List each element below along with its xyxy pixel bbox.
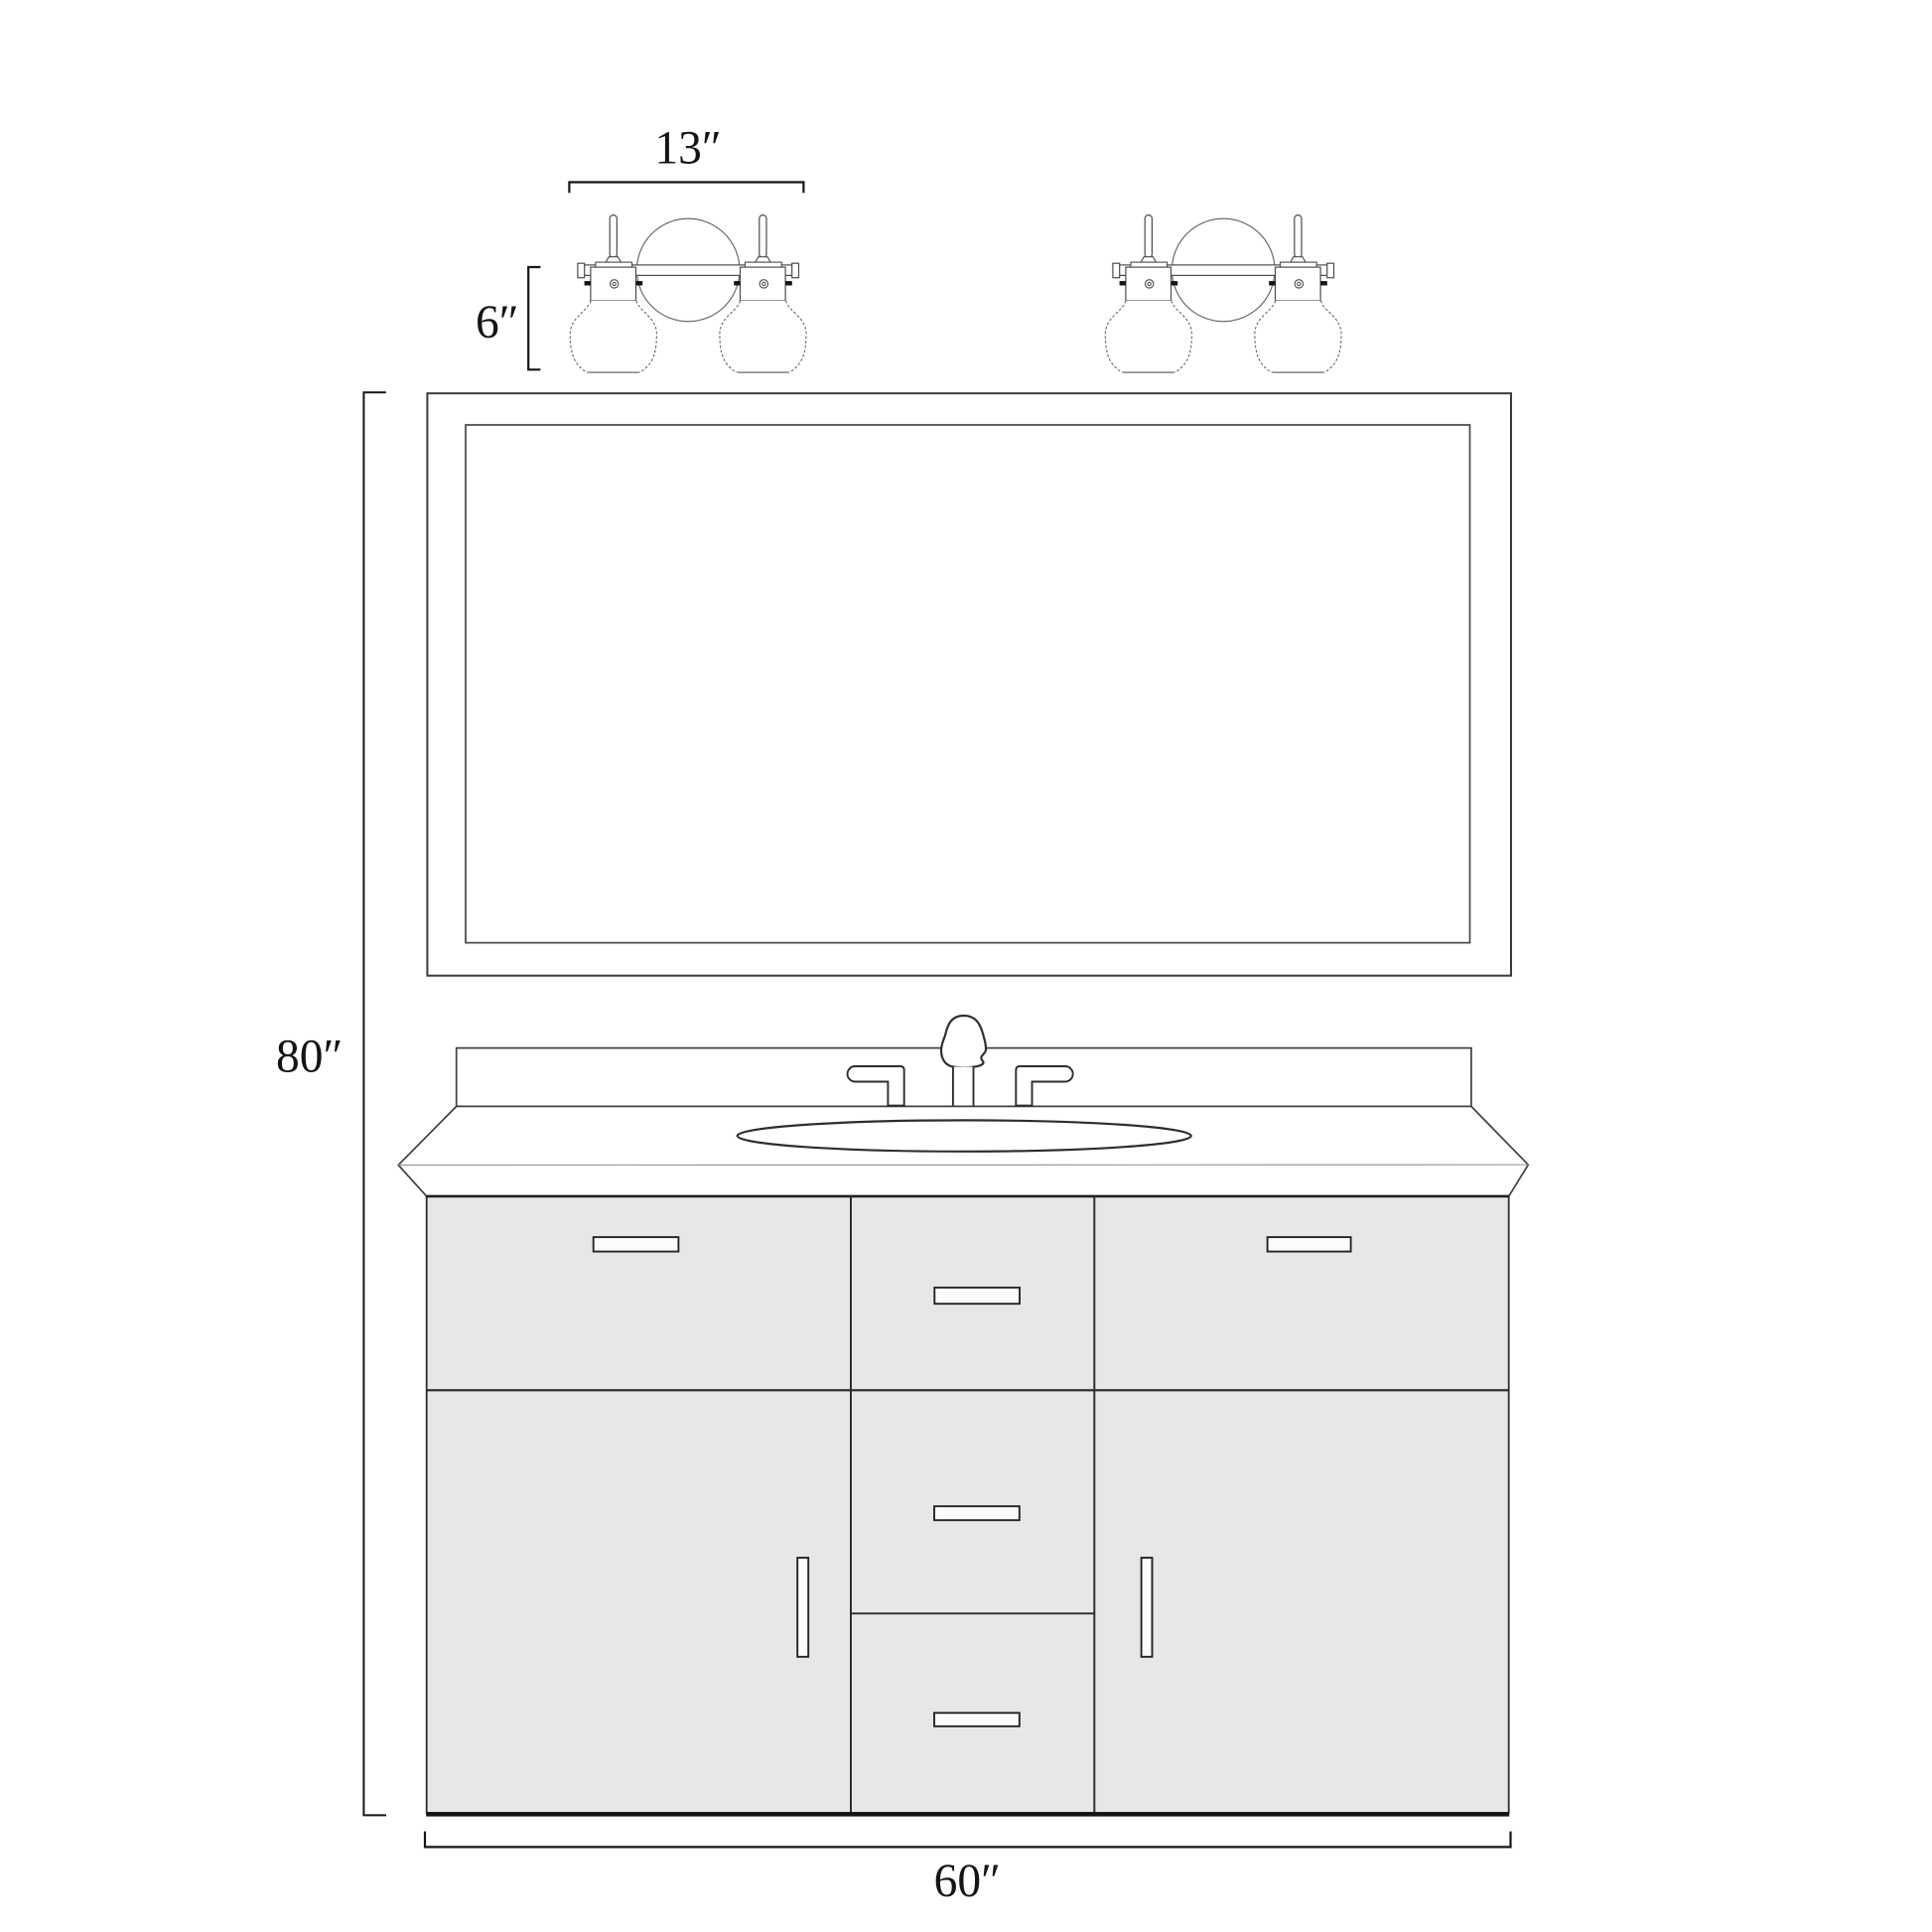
svg-text:6″: 6″ (476, 297, 519, 348)
svg-text:80″: 80″ (276, 1032, 343, 1083)
svg-text:13″: 13″ (654, 123, 721, 175)
svg-text:60″: 60″ (934, 1856, 1001, 1907)
